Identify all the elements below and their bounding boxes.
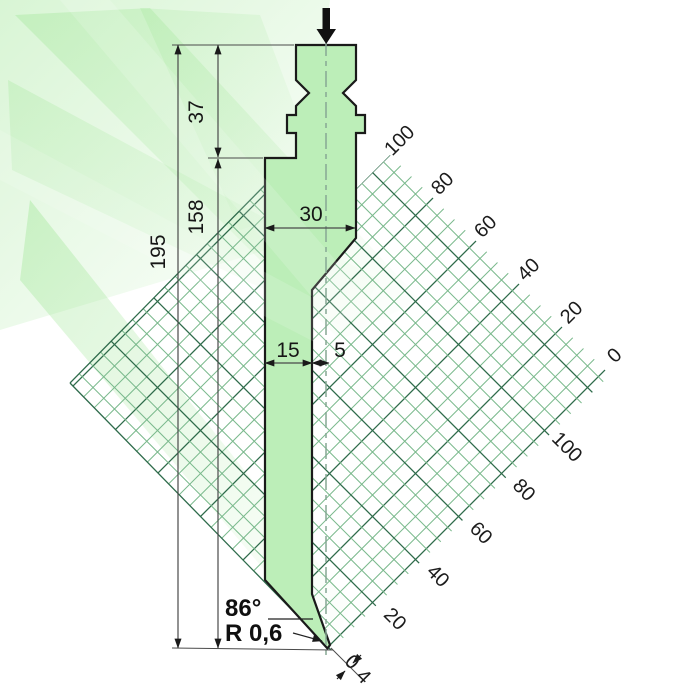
- scale-label: 0: [603, 344, 626, 367]
- dim-label-body-height: 158: [185, 199, 208, 234]
- punch-drawing-svg: 195 37 158 30 15 5 86° R 0,6 4 100806040…: [0, 0, 700, 700]
- scale-label: 40: [422, 561, 453, 592]
- scale-label: 80: [508, 475, 539, 506]
- scale-label: 100: [380, 121, 419, 160]
- tip-angle-label: 86°: [225, 595, 261, 622]
- dim-label-body-width: 30: [299, 203, 322, 226]
- tip-flat-arrow-lower: [337, 671, 345, 679]
- tip-flat-label: 4: [352, 665, 375, 688]
- dim-label-shank-height: 37: [185, 100, 208, 123]
- technical-drawing-page: 195 37 158 30 15 5 86° R 0,6 4 100806040…: [0, 0, 700, 700]
- scale-label: 20: [556, 297, 587, 328]
- scale-label: 20: [379, 604, 410, 635]
- dim-label-blade-width: 15: [276, 339, 299, 362]
- dim-label-tip-offset: 5: [334, 339, 346, 362]
- lower-scale-labels: 100806040200: [340, 428, 586, 674]
- tip-radius-label: R 0,6: [225, 620, 282, 647]
- scale-label: 0: [340, 651, 363, 674]
- dim-label-total-height: 195: [147, 234, 170, 269]
- scale-label: 60: [465, 518, 496, 549]
- scale-label: 100: [547, 428, 586, 467]
- extension-line-bottom: [172, 648, 333, 650]
- scale-label: 60: [470, 211, 501, 242]
- scale-label: 40: [513, 254, 544, 285]
- upper-scale-labels: 100806040200: [380, 121, 626, 367]
- scale-label: 80: [427, 168, 458, 199]
- background-glow: [0, 0, 420, 648]
